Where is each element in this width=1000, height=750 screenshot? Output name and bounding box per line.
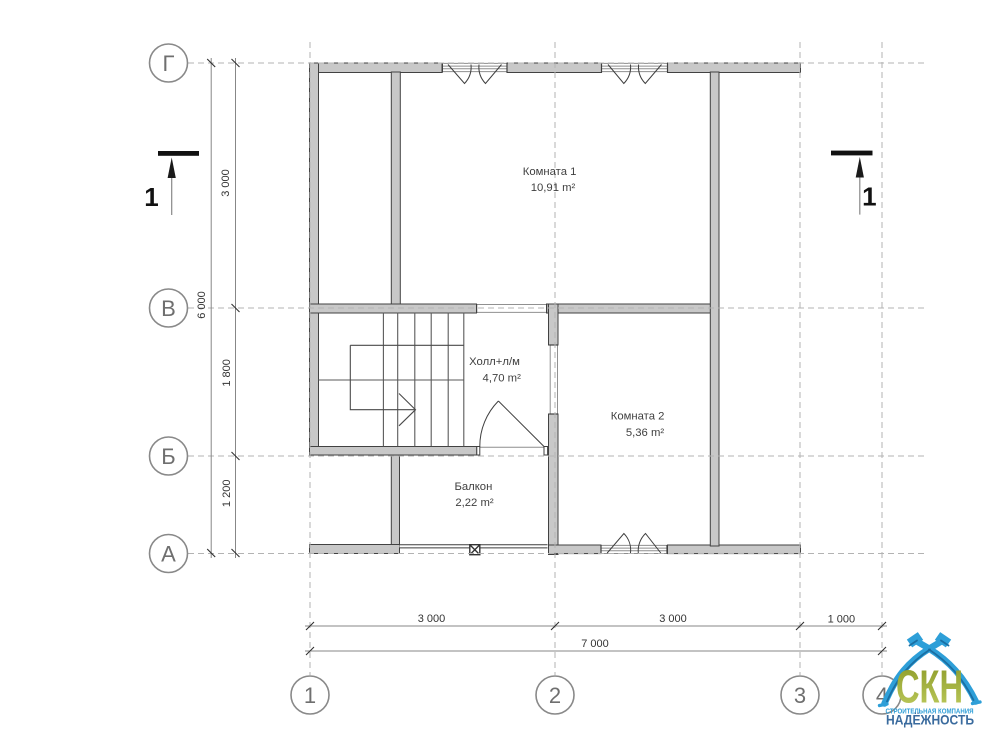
svg-text:7 000: 7 000 (581, 638, 609, 650)
svg-text:Комната 1: Комната 1 (523, 166, 577, 178)
svg-text:10,91 m²: 10,91 m² (531, 182, 576, 194)
svg-text:Г: Г (163, 51, 175, 76)
svg-text:НАДЁЖНОСТЬ: НАДЁЖНОСТЬ (886, 713, 974, 728)
svg-text:1 000: 1 000 (828, 614, 856, 626)
svg-text:СКН: СКН (896, 662, 963, 713)
svg-text:1: 1 (862, 182, 876, 212)
svg-text:В: В (161, 296, 176, 321)
svg-text:3 000: 3 000 (220, 169, 232, 197)
svg-text:6 000: 6 000 (196, 291, 208, 319)
svg-text:А: А (161, 542, 176, 567)
svg-text:Комната 2: Комната 2 (611, 411, 665, 423)
svg-text:Балкон: Балкон (454, 481, 492, 493)
svg-text:3 000: 3 000 (659, 613, 687, 625)
svg-text:Б: Б (161, 444, 175, 469)
svg-text:Холл+л/м: Холл+л/м (469, 356, 520, 368)
svg-text:2,22 m²: 2,22 m² (455, 497, 494, 509)
svg-text:5,36 m²: 5,36 m² (626, 427, 665, 439)
svg-text:3 000: 3 000 (418, 613, 446, 625)
svg-text:1 200: 1 200 (221, 480, 233, 508)
svg-text:4,70 m²: 4,70 m² (483, 373, 522, 385)
svg-text:1: 1 (144, 182, 158, 212)
svg-text:1 800: 1 800 (221, 359, 233, 387)
svg-text:1: 1 (304, 683, 316, 708)
svg-text:2: 2 (549, 683, 561, 708)
svg-text:3: 3 (794, 683, 806, 708)
